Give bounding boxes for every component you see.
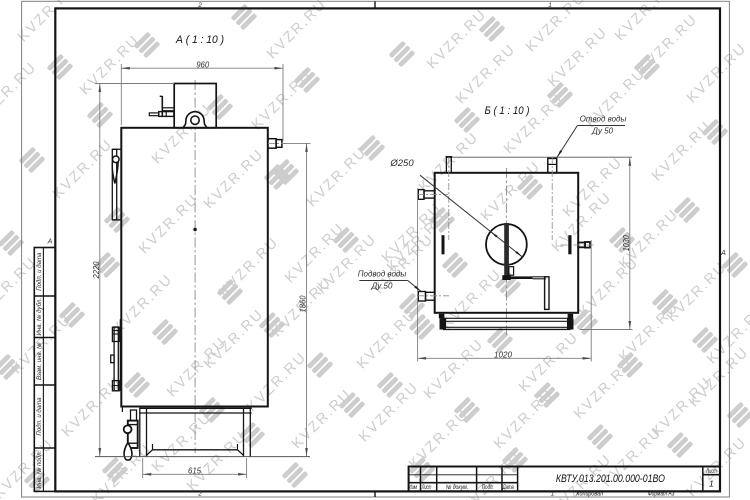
- svg-text:А ( 1 : 10 ): А ( 1 : 10 ): [175, 34, 224, 46]
- svg-text:Инв. № подл.: Инв. № подл.: [36, 451, 43, 489]
- svg-text:Подп.: Подп.: [482, 484, 494, 491]
- svg-text:КВТУ.013.201.00.000-01ВО: КВТУ.013.201.00.000-01ВО: [556, 473, 665, 485]
- svg-text:Ду 50: Ду 50: [591, 127, 613, 136]
- svg-text:615: 615: [188, 466, 202, 475]
- svg-text:Подвод воды: Подвод воды: [358, 270, 407, 279]
- svg-text:№ докум.: № докум.: [446, 484, 468, 491]
- svg-text:1: 1: [709, 479, 714, 489]
- svg-text:2: 2: [197, 490, 202, 497]
- svg-text:Б ( 1 : 10 ): Б ( 1 : 10 ): [485, 105, 530, 117]
- svg-text:2220: 2220: [92, 261, 101, 279]
- svg-text:Подп. и дата: Подп. и дата: [36, 252, 43, 291]
- svg-text:Лист: Лист: [705, 469, 716, 475]
- svg-text:1030: 1030: [622, 235, 631, 251]
- svg-text:А: А: [720, 250, 726, 257]
- svg-text:Лист: Лист: [421, 484, 431, 491]
- svg-text:Отвод воды: Отвод воды: [580, 115, 627, 124]
- svg-text:Ø250: Ø250: [389, 158, 414, 169]
- svg-text:Подп. и дата: Подп. и дата: [36, 397, 43, 436]
- svg-text:Взам. инв. №: Взам. инв. №: [36, 342, 43, 380]
- svg-text:Дата: Дата: [502, 484, 514, 491]
- svg-text:2: 2: [197, 2, 202, 9]
- svg-text:1020: 1020: [494, 350, 513, 359]
- svg-text:1: 1: [548, 2, 552, 9]
- svg-text:Ду 50: Ду 50: [371, 282, 393, 291]
- svg-text:Копировал: Копировал: [576, 491, 603, 498]
- svg-text:1860: 1860: [299, 295, 308, 313]
- svg-text:А: А: [47, 239, 53, 246]
- svg-text:Формат А3: Формат А3: [648, 491, 675, 498]
- svg-text:Инв. № дубл.: Инв. № дубл.: [36, 298, 43, 335]
- svg-text:Изм: Изм: [408, 484, 417, 491]
- svg-text:960: 960: [196, 60, 210, 69]
